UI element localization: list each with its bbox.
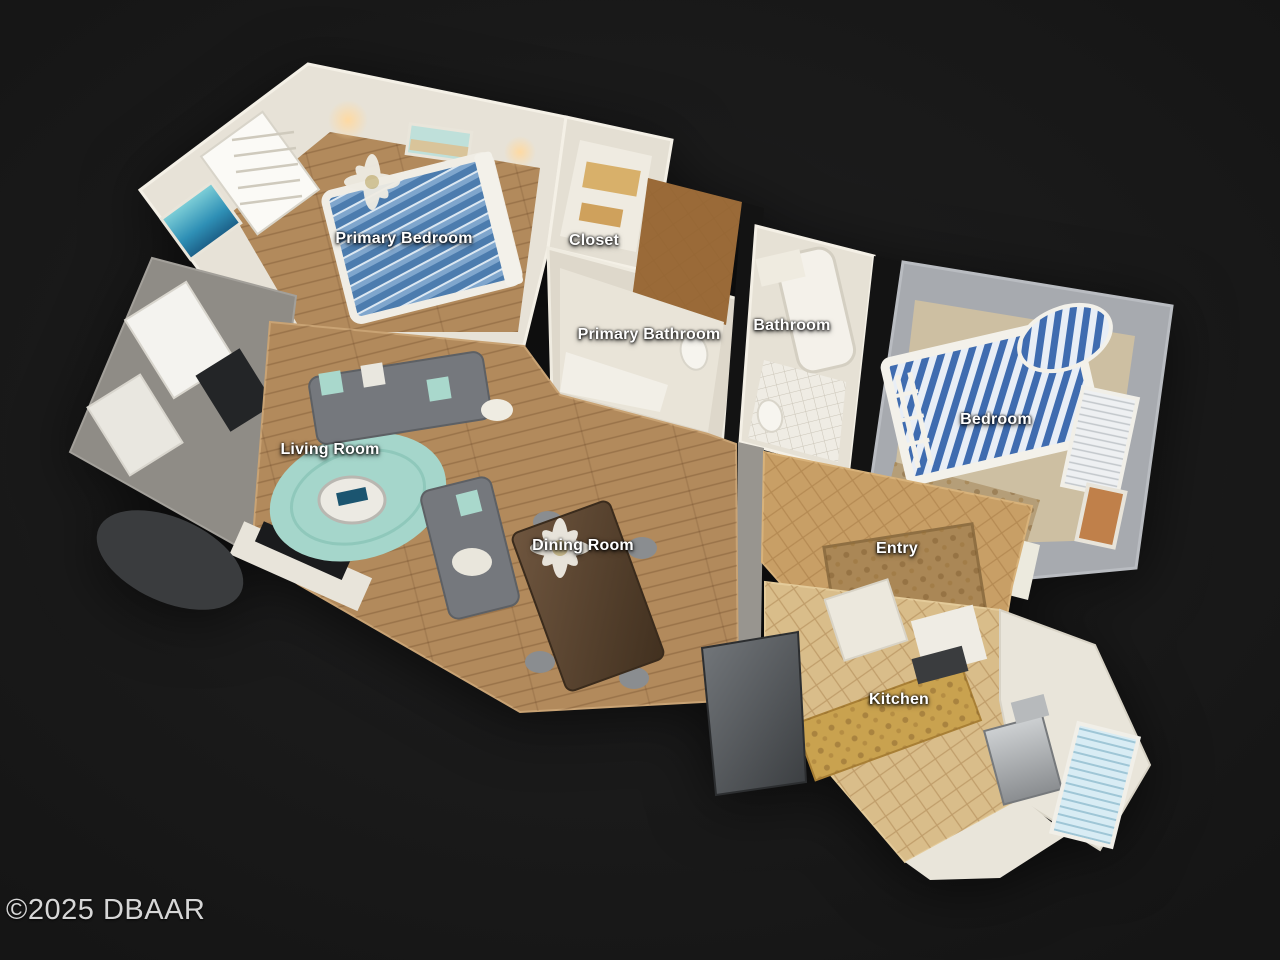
refrigerator [702, 632, 806, 795]
dollhouse-render [0, 0, 1280, 960]
room-area-bathroom [740, 226, 874, 472]
throw-pillow [426, 376, 451, 401]
room-area-kitchen [702, 579, 1150, 880]
copyright-watermark: ©2025 DBAAR [6, 894, 205, 927]
wall-light [328, 100, 368, 140]
dollhouse-viewer-canvas[interactable]: Primary Bedroom Closet Primary Bathroom … [0, 0, 1280, 960]
sun-hat [481, 399, 513, 421]
throw-pillow [318, 370, 343, 395]
wall-light [504, 136, 536, 168]
throw-pillow [360, 362, 385, 387]
blanket [452, 548, 492, 576]
